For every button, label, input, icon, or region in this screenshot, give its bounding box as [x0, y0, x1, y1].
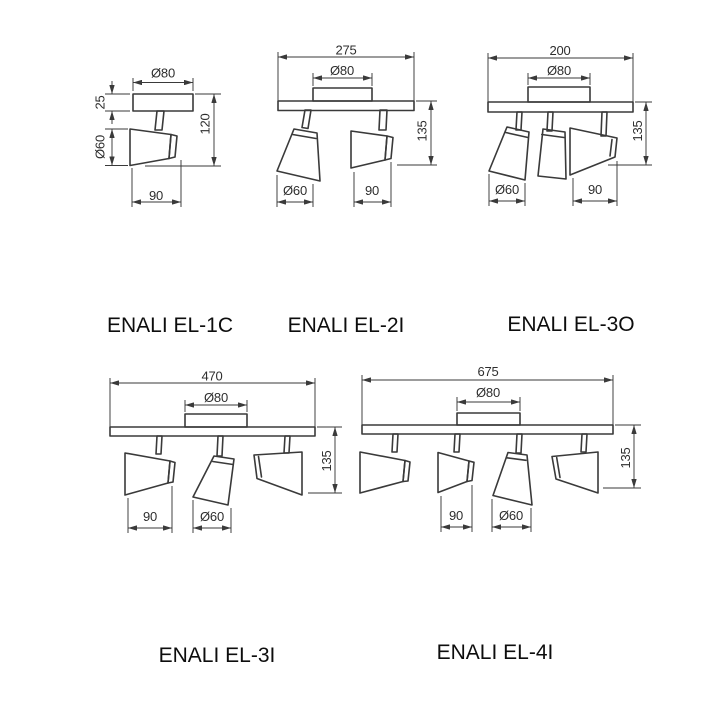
el2i-spot-head-left: [277, 129, 320, 181]
el3i-stem-2: [217, 436, 223, 456]
el2i-canopy-box: [313, 88, 372, 101]
el3i-canopy-box: [185, 414, 247, 427]
el3i-fixture: [110, 414, 315, 505]
el3i-head-rim-3: [259, 457, 262, 478]
dim-label: Ø80: [204, 390, 228, 405]
el3i-dim-canopy-diameter: Ø80: [185, 390, 247, 412]
el3o-spot-head-1: [489, 127, 529, 180]
el1c-dim-head-diameter: Ø60: [93, 129, 129, 166]
el3o-mounting-bar: [488, 102, 633, 112]
el3i-mounting-bar: [110, 427, 315, 436]
el4i-fixture: [360, 413, 613, 505]
el3o-dim-head-length: 90: [573, 161, 617, 206]
el4i-head-rim-4: [557, 458, 560, 478]
dim-label: 135: [630, 120, 645, 141]
el2i-head-rim-left: [293, 135, 316, 139]
el3i-stem-1: [156, 436, 162, 454]
el2i-dim-head-diameter: Ø60: [277, 175, 313, 207]
el3o-head-rim-1: [506, 133, 528, 138]
el3i-spot-head-1: [125, 453, 170, 495]
el4i-stem-3: [516, 434, 522, 453]
el3o-head-rim-3: [610, 140, 612, 157]
el1c-spot-head: [130, 129, 171, 166]
product-label-el-1c: ENALI EL-1C: [107, 314, 233, 338]
el1c-fixture: [130, 94, 193, 166]
el4i-head-rim-3: [507, 458, 526, 461]
el4i-stem-1: [392, 434, 398, 452]
dim-label: 200: [549, 43, 570, 58]
el4i-dim-head-length: 90: [441, 485, 472, 532]
el1c-canopy-box: [133, 94, 193, 111]
el1c-dim-head-length: 90: [132, 160, 181, 207]
dim-label: 90: [143, 509, 157, 524]
el4i-dim-canopy-diameter: Ø80: [457, 385, 520, 411]
el2i-dim-canopy-diameter: Ø80: [313, 63, 372, 86]
dim-label: 90: [149, 188, 163, 203]
el2i-stem-left: [302, 110, 311, 129]
drawing-el-2i: 275 Ø80 135 Ø60 90: [277, 43, 437, 208]
dim-label: Ø80: [330, 63, 354, 78]
dim-label: 90: [449, 508, 463, 523]
product-label-el-2i: ENALI EL-2I: [288, 314, 405, 338]
el4i-head-rim-1: [403, 461, 410, 482]
dim-label: 135: [415, 120, 430, 141]
el3i-stem-3: [284, 436, 290, 453]
el4i-mounting-bar: [362, 425, 613, 434]
dim-label: 120: [198, 113, 213, 134]
dim-label: Ø60: [499, 508, 523, 523]
el3o-fixture: [488, 87, 633, 180]
el1c-head-rim: [169, 135, 177, 159]
el3o-canopy-box: [528, 87, 590, 102]
product-label-el-3o: ENALI EL-3O: [507, 313, 634, 337]
el2i-dim-head-length: 90: [354, 162, 391, 207]
dim-label: 90: [588, 182, 602, 197]
dimension-sheet: Ø80 25 Ø60 120 90: [0, 0, 724, 724]
el2i-head-rim-right: [385, 136, 393, 160]
el1c-stem: [155, 111, 164, 130]
el4i-stem-2: [454, 434, 460, 452]
el2i-stem-right: [379, 110, 387, 130]
el1c-dim-canopy-depth: 25: [93, 81, 131, 124]
dim-label: 135: [618, 447, 633, 468]
el4i-spot-head-1: [360, 452, 405, 493]
drawing-el-4i: 675 Ø80 135 90 Ø60: [360, 364, 641, 532]
el3i-head-rim-1: [168, 461, 175, 483]
dim-label: Ø80: [547, 63, 571, 78]
el2i-fixture: [277, 88, 414, 181]
dim-label: Ø80: [151, 66, 175, 81]
technical-drawings: Ø80 25 Ø60 120 90: [0, 0, 724, 724]
el2i-spot-head-right: [351, 131, 387, 168]
el3i-dim-overall-depth: 135: [308, 427, 342, 493]
product-label-el-4i: ENALI EL-4I: [437, 641, 554, 665]
dim-label: 470: [201, 369, 222, 384]
product-label-el-3i: ENALI EL-3I: [159, 644, 276, 668]
el3o-head-rim-2: [542, 135, 564, 138]
drawing-el-3o: 200 Ø80 135 Ø60 90: [488, 43, 652, 206]
dim-label: 135: [319, 450, 334, 471]
dim-label: 25: [93, 95, 108, 109]
drawing-el-3i: 470 Ø80 135 90 Ø60: [110, 369, 342, 534]
el4i-stem-4: [581, 434, 587, 452]
dim-label: Ø60: [93, 135, 108, 159]
el3o-stem-1: [516, 112, 522, 130]
el4i-spot-head-2: [438, 453, 469, 493]
el3o-stem-2: [547, 112, 553, 131]
dim-label: Ø60: [200, 509, 224, 524]
dim-label: 90: [365, 183, 379, 198]
dim-label: 675: [477, 364, 498, 379]
dim-label: 275: [335, 43, 356, 58]
el3i-head-rim-2: [213, 462, 233, 465]
dim-label: Ø60: [495, 182, 519, 197]
el3o-dim-canopy-diameter: Ø80: [528, 63, 590, 85]
dim-label: Ø60: [283, 183, 307, 198]
el1c-dim-canopy-diameter: Ø80: [133, 66, 193, 92]
el3o-stem-3: [601, 112, 607, 136]
el4i-canopy-box: [457, 413, 520, 425]
drawing-el-1c: Ø80 25 Ø60 120 90: [93, 66, 222, 208]
dim-label: Ø80: [476, 385, 500, 400]
el4i-head-rim-2: [467, 461, 474, 482]
el2i-mounting-bar: [278, 101, 414, 111]
